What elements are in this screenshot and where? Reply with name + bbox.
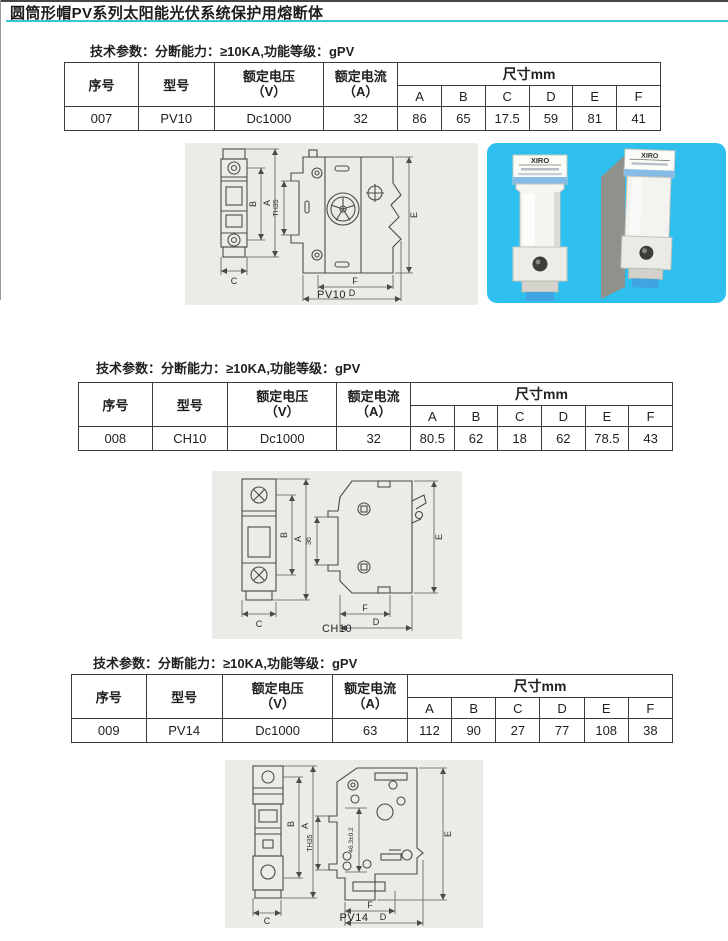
dim-label-a: A bbox=[300, 823, 310, 829]
cell-dim-c: 17.5 bbox=[485, 107, 529, 131]
col-voltage-line1: 额定电压 bbox=[223, 682, 333, 697]
col-dim-e: E bbox=[573, 86, 617, 107]
cell-dim-b: 65 bbox=[441, 107, 485, 131]
pv10-front-view bbox=[221, 149, 247, 257]
col-voltage-line2: （V） bbox=[223, 697, 333, 712]
col-dimensions-group: 尺寸mm bbox=[411, 383, 673, 406]
cell-dim-e: 108 bbox=[584, 719, 628, 743]
table-row: 008 CH10 Dc1000 32 80.5 62 18 62 78.5 43 bbox=[79, 427, 673, 451]
cell-current: 63 bbox=[333, 719, 408, 743]
brand-label: XIRO bbox=[641, 153, 659, 161]
ch10-front-view bbox=[242, 479, 276, 600]
cell-dim-d: 62 bbox=[541, 427, 585, 451]
cell-dim-a: 80.5 bbox=[411, 427, 455, 451]
col-serial: 序号 bbox=[79, 383, 153, 427]
col-voltage-line1: 额定电压 bbox=[215, 70, 324, 85]
product-photo-image: XIRO bbox=[487, 143, 726, 303]
col-current-line1: 额定电流 bbox=[337, 390, 410, 405]
table-row: 009 PV14 Dc1000 63 112 90 27 77 108 38 bbox=[72, 719, 673, 743]
pv14-front-view bbox=[253, 766, 283, 898]
screw-top-icon bbox=[262, 771, 274, 783]
screw-head-icon bbox=[533, 257, 548, 272]
cell-current: 32 bbox=[337, 427, 411, 451]
ch10-technical-drawing: B A C 36 E F D bbox=[212, 471, 462, 639]
window bbox=[248, 527, 270, 557]
col-dim-d: D bbox=[540, 698, 584, 719]
col-serial: 序号 bbox=[72, 675, 147, 719]
col-model: 型号 bbox=[146, 675, 222, 719]
col-dim-e: E bbox=[584, 698, 628, 719]
cell-serial: 008 bbox=[79, 427, 153, 451]
cell-dim-d: 77 bbox=[540, 719, 584, 743]
dim-label-c: C bbox=[231, 276, 238, 286]
figure-caption-pv10: PV10 bbox=[185, 289, 478, 301]
figure-ch10: B A C 36 E F D CH10 bbox=[212, 471, 462, 639]
cell-model: PV10 bbox=[138, 107, 214, 131]
figure-pv10: B A C TH35 E F D PV10 bbox=[185, 143, 478, 305]
title-underline bbox=[6, 20, 728, 22]
col-current-line1: 额定电流 bbox=[324, 70, 397, 85]
ch10-dimensions bbox=[242, 479, 438, 631]
cell-dim-a: 112 bbox=[407, 719, 451, 743]
product-photo: XIRO bbox=[487, 143, 726, 303]
cell-voltage: Dc1000 bbox=[222, 719, 333, 743]
cell-dim-b: 90 bbox=[452, 719, 496, 743]
dim-label-e: E bbox=[443, 831, 453, 837]
tech-params-pv14: 技术参数：分断能力：≥10KA,功能等级：gPV bbox=[93, 653, 357, 672]
dim-label-a: A bbox=[262, 200, 272, 206]
screw-bottom-icon bbox=[228, 234, 240, 246]
cell-dim-d: 59 bbox=[529, 107, 573, 131]
pv10-dimensions bbox=[221, 149, 413, 301]
spec-table-pv14: 序号 型号 额定电压 （V） 额定电流 （A） 尺寸mm A B C D E F… bbox=[71, 674, 673, 743]
col-serial: 序号 bbox=[65, 63, 139, 107]
cell-serial: 009 bbox=[72, 719, 147, 743]
col-dim-d: D bbox=[541, 406, 585, 427]
rail-label: TH35 bbox=[273, 199, 280, 216]
col-current: 额定电流 （A） bbox=[333, 675, 408, 719]
latch bbox=[381, 854, 401, 860]
col-current: 额定电流 （A） bbox=[324, 63, 398, 107]
tech-params-ch10: 技术参数：分断能力：≥10KA,功能等级：gPV bbox=[96, 358, 360, 377]
page-border-left bbox=[0, 0, 1, 300]
cell-dim-b: 62 bbox=[454, 427, 498, 451]
cell-model: PV14 bbox=[146, 719, 222, 743]
col-model: 型号 bbox=[152, 383, 227, 427]
brand-label: XIRO bbox=[531, 156, 550, 165]
col-dim-a: A bbox=[411, 406, 455, 427]
cell-current: 32 bbox=[324, 107, 398, 131]
col-dim-c: C bbox=[498, 406, 542, 427]
dim-label-b: B bbox=[248, 201, 258, 207]
cell-dim-c: 27 bbox=[496, 719, 540, 743]
cell-dim-f: 41 bbox=[617, 107, 661, 131]
dim-label-b: B bbox=[279, 532, 289, 538]
latch bbox=[412, 495, 426, 509]
col-dim-f: F bbox=[628, 698, 672, 719]
dim-label-e: E bbox=[434, 534, 444, 540]
col-dim-e: E bbox=[585, 406, 629, 427]
col-dimensions-group: 尺寸mm bbox=[407, 675, 672, 698]
cell-dim-f: 38 bbox=[628, 719, 672, 743]
extra-dim-label: 46.3±0.2 bbox=[348, 827, 355, 853]
col-dimensions-group: 尺寸mm bbox=[398, 63, 661, 86]
dim-label-a: A bbox=[293, 536, 303, 542]
table-row: 007 PV10 Dc1000 32 86 65 17.5 59 81 41 bbox=[65, 107, 661, 131]
cell-voltage: Dc1000 bbox=[228, 427, 337, 451]
col-voltage-line2: （V） bbox=[228, 405, 336, 420]
pv14-technical-drawing: B A C TH35 46.3±0.2 E F D bbox=[225, 760, 483, 928]
col-dim-b: B bbox=[441, 86, 485, 107]
col-voltage-line2: （V） bbox=[215, 85, 324, 100]
col-current-line1: 额定电流 bbox=[333, 682, 407, 697]
rail-label: TH35 bbox=[307, 834, 314, 851]
dim-label-f: F bbox=[362, 603, 368, 613]
fuse-holder-left: XIRO bbox=[513, 155, 567, 301]
pv10-technical-drawing: B A C TH35 E F D bbox=[185, 143, 478, 305]
col-dim-f: F bbox=[629, 406, 673, 427]
col-model: 型号 bbox=[138, 63, 214, 107]
dim-label-e: E bbox=[409, 212, 419, 218]
cell-dim-a: 86 bbox=[398, 107, 442, 131]
col-dim-c: C bbox=[496, 698, 540, 719]
cell-dim-c: 18 bbox=[498, 427, 542, 451]
figure-caption-pv14: PV14 bbox=[225, 912, 483, 924]
col-dim-a: A bbox=[398, 86, 442, 107]
screw-bottom-icon bbox=[261, 865, 275, 879]
screw-top-icon bbox=[228, 162, 240, 174]
dim-label-f: F bbox=[367, 900, 373, 910]
cell-voltage: Dc1000 bbox=[214, 107, 324, 131]
col-voltage: 额定电压 （V） bbox=[214, 63, 324, 107]
col-current-line2: （A） bbox=[324, 85, 397, 100]
spec-table-ch10: 序号 型号 额定电压 （V） 额定电流 （A） 尺寸mm A B C D E F… bbox=[78, 382, 673, 451]
ch10-side-view bbox=[328, 481, 426, 593]
col-voltage: 额定电压 （V） bbox=[228, 383, 337, 427]
cell-serial: 007 bbox=[65, 107, 139, 131]
pv10-side-view bbox=[291, 150, 401, 273]
cell-model: CH10 bbox=[152, 427, 227, 451]
col-dim-a: A bbox=[407, 698, 451, 719]
col-dim-f: F bbox=[617, 86, 661, 107]
pv14-side-view bbox=[329, 768, 423, 900]
dim-label-f: F bbox=[352, 276, 358, 286]
figure-pv14: B A C TH35 46.3±0.2 E F D PV14 bbox=[225, 760, 483, 928]
col-voltage: 额定电压 （V） bbox=[222, 675, 333, 719]
cell-dim-e: 81 bbox=[573, 107, 617, 131]
tech-params-pv10: 技术参数：分断能力：≥10KA,功能等级：gPV bbox=[90, 41, 354, 60]
col-dim-b: B bbox=[454, 406, 498, 427]
dim-label-b: B bbox=[286, 821, 296, 827]
col-current: 额定电流 （A） bbox=[337, 383, 411, 427]
rail-label: 36 bbox=[306, 537, 313, 545]
cell-dim-f: 43 bbox=[629, 427, 673, 451]
col-current-line2: （A） bbox=[333, 697, 407, 712]
col-dim-b: B bbox=[452, 698, 496, 719]
col-current-line2: （A） bbox=[337, 405, 410, 420]
catalog-page: 圆筒形帽PV系列太阳能光伏系统保护用熔断体 技术参数：分断能力：≥10KA,功能… bbox=[0, 0, 728, 941]
cell-dim-e: 78.5 bbox=[585, 427, 629, 451]
figure-caption-ch10: CH10 bbox=[212, 623, 462, 635]
col-voltage-line1: 额定电压 bbox=[228, 390, 336, 405]
col-dim-d: D bbox=[529, 86, 573, 107]
spec-table-pv10: 序号 型号 额定电压 （V） 额定电流 （A） 尺寸mm A B C D E F… bbox=[64, 62, 661, 131]
col-dim-c: C bbox=[485, 86, 529, 107]
